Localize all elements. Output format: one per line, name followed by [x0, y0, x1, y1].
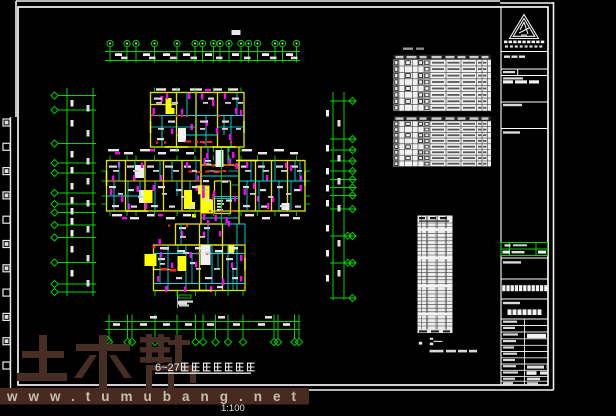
svg-text:www.tumubang.net: www.tumubang.net: [6, 389, 307, 404]
svg-text:6~27: 6~27: [155, 362, 180, 374]
svg-text:1:100: 1:100: [221, 403, 245, 414]
